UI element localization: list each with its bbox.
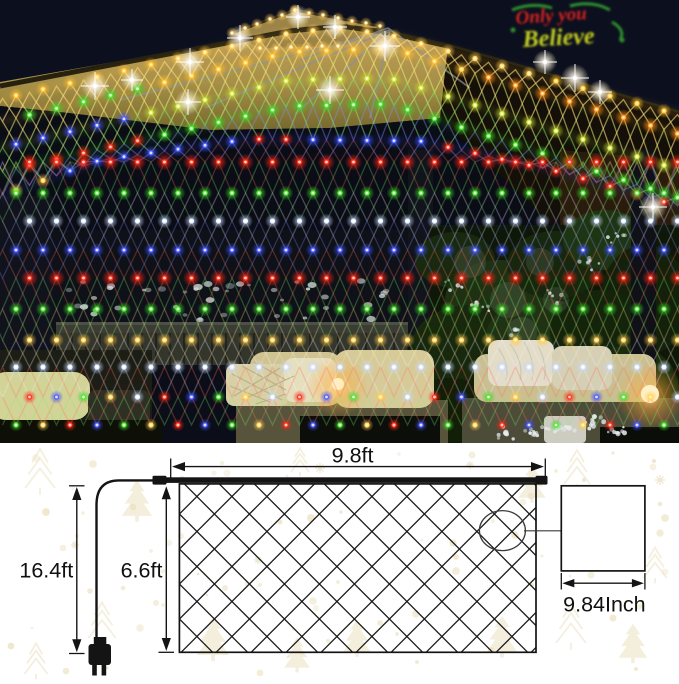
svg-text:9.84Inch: 9.84Inch bbox=[563, 592, 645, 616]
svg-text:16.4ft: 16.4ft bbox=[19, 559, 73, 583]
svg-text:6.6ft: 6.6ft bbox=[121, 559, 163, 583]
svg-text:Believe: Believe bbox=[521, 23, 596, 53]
svg-text:9.8ft: 9.8ft bbox=[332, 444, 374, 468]
